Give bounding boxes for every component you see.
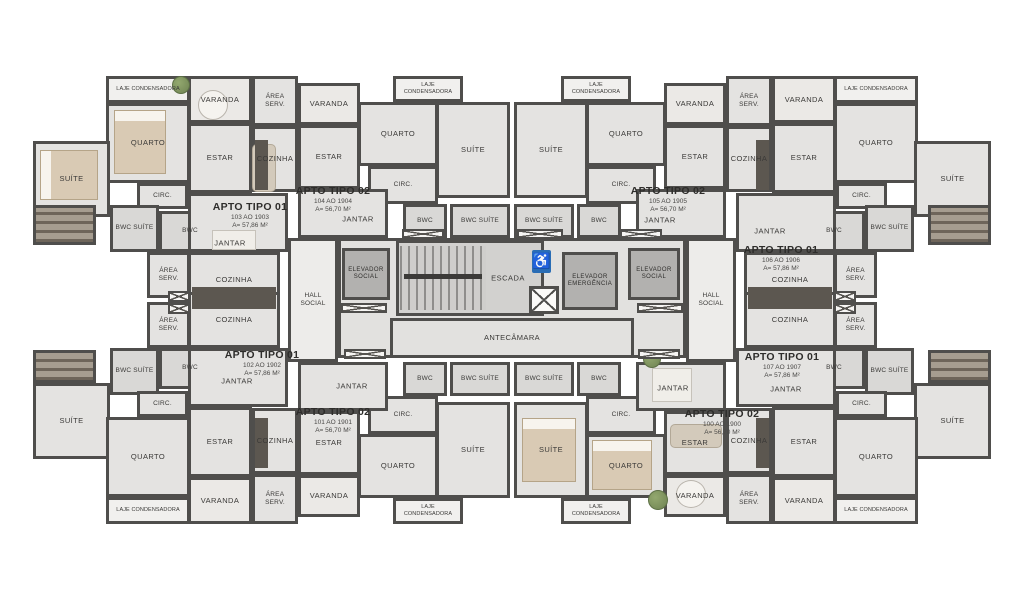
closet	[33, 205, 96, 245]
room-suite: SUÍTE	[514, 102, 588, 198]
room-jantar-label: JANTAR	[644, 216, 676, 225]
room-quarto: QUARTO	[358, 102, 438, 166]
room-suite: SUÍTE	[436, 102, 510, 198]
room-quarto: QUARTO	[586, 102, 666, 166]
apartment-title-102: APTO TIPO 01 102 AO 1902 A= 57,86 M²	[225, 349, 300, 377]
room-varanda: VARANDA	[772, 76, 836, 123]
room-laje-condensadora: LAJE CONDENSADORA	[834, 497, 918, 524]
room-circulacao: CIRC.	[137, 391, 188, 417]
floor-plan: LAJE CONDENSADORA VARANDA ÁREA SERV. QUA…	[0, 0, 1024, 597]
apartment-title-106: APTO TIPO 01 106 AO 1906 A= 57,86 M²	[744, 244, 819, 272]
room-bwc-suite: BWC SUÍTE	[865, 205, 914, 252]
room-laje-condensadora: LAJE CONDENSADORA	[106, 497, 190, 524]
room-laje-condensadora: LAJE CONDENSADORA	[393, 76, 463, 102]
room-laje-condensadora: LAJE CONDENSADORA	[561, 498, 631, 524]
stair-label: ESCADA	[491, 274, 525, 283]
plant	[648, 490, 668, 510]
room-estar: ESTAR	[188, 407, 252, 477]
room-hall-social: HALL SOCIAL	[686, 238, 736, 362]
apartment-title-104: APTO TIPO 02 104 AO 1904 A= 56,70 M²	[296, 185, 371, 213]
kitchen-counter	[756, 140, 769, 190]
room-bwc-suite: BWC SUÍTE	[450, 204, 510, 238]
room-varanda: VARANDA	[298, 475, 360, 517]
duct-shaft	[529, 286, 559, 314]
room-suite: SUÍTE	[914, 383, 991, 459]
room-varanda: VARANDA	[298, 83, 360, 125]
room-elevador-social: ELEVADOR SOCIAL	[342, 248, 390, 300]
room-jantar-label: JANTAR	[754, 227, 786, 236]
apartment-title-105: APTO TIPO 02 105 AO 1905 A= 56,70 M²	[631, 185, 706, 213]
kitchen-counter	[255, 140, 268, 190]
room-varanda: VARANDA	[188, 477, 252, 524]
room-area-servico: ÁREA SERV.	[726, 76, 772, 126]
stair-rail	[404, 274, 482, 279]
room-area-servico: ÁREA SERV.	[252, 474, 298, 524]
room-bwc-suite: BWC SUÍTE	[514, 362, 574, 396]
apartment-title-107: APTO TIPO 01 107 AO 1907 A= 57,86 M²	[745, 351, 820, 379]
room-jantar-label: JANTAR	[657, 384, 689, 393]
vent-grate	[344, 349, 386, 359]
room-jantar-label: JANTAR	[214, 239, 246, 248]
room-laje-condensadora: LAJE CONDENSADORA	[561, 76, 631, 102]
room-varanda: VARANDA	[664, 83, 726, 125]
room-elevador-emergencia: ELEVADOR EMERGÊNCIA	[562, 252, 618, 310]
room-jantar-label: JANTAR	[342, 215, 374, 224]
vent-grate	[517, 229, 563, 239]
room-circulacao: CIRC.	[836, 391, 887, 417]
apartment-title-101: APTO TIPO 02 101 AO 1901 A= 56,70 M²	[296, 406, 371, 434]
room-estar: ESTAR	[772, 407, 836, 477]
room-jantar-label: JANTAR	[221, 377, 253, 386]
room-bwc-suite: BWC SUÍTE	[865, 348, 914, 395]
room-bwc: BWC	[577, 362, 621, 396]
vent-grate	[620, 229, 662, 239]
vent-grate	[168, 291, 190, 302]
room-area-servico: ÁREA SERV.	[726, 474, 772, 524]
closet	[928, 350, 991, 383]
closet	[33, 350, 96, 383]
vent-grate	[341, 303, 387, 313]
room-estar: ESTAR	[664, 125, 726, 189]
room-hall-social: HALL SOCIAL	[288, 238, 338, 362]
vent-grate	[637, 303, 683, 313]
room-quarto: QUARTO	[106, 417, 190, 497]
vent-grate	[402, 229, 444, 239]
room-bwc: BWC	[403, 362, 447, 396]
room-suite: SUÍTE	[33, 383, 110, 459]
apartment-title-100: APTO TIPO 02 100 AO 1900 A= 56,70 M²	[685, 408, 760, 436]
vent-grate	[638, 349, 680, 359]
kitchen-counter	[748, 297, 832, 309]
room-jantar-label: JANTAR	[770, 385, 802, 394]
room-jantar-label: JANTAR	[336, 382, 368, 391]
room-estar: ESTAR	[298, 125, 360, 189]
room-bwc-suite: BWC SUÍTE	[450, 362, 510, 396]
wheelchair-accessible-icon: ♿	[532, 250, 551, 273]
room-laje-condensadora: LAJE CONDENSADORA	[834, 76, 918, 103]
room-bwc-suite: BWC SUÍTE	[110, 348, 159, 395]
room-bwc: BWC	[577, 204, 621, 238]
room-antecamara: ANTECÂMARA	[390, 318, 634, 358]
closet	[928, 205, 991, 245]
vent-grate	[168, 303, 190, 314]
room-area-servico: ÁREA SERV.	[252, 76, 298, 126]
room-varanda: VARANDA	[772, 477, 836, 524]
apartment-title-103: APTO TIPO 01 103 AO 1903 A= 57,86 M²	[213, 201, 288, 229]
room-quarto: QUARTO	[834, 417, 918, 497]
kitchen-counter	[192, 297, 276, 309]
room-laje-condensadora: LAJE CONDENSADORA	[393, 498, 463, 524]
room-estar: ESTAR	[188, 123, 252, 193]
room-quarto: QUARTO	[358, 434, 438, 498]
room-quarto: QUARTO	[834, 103, 918, 183]
room-estar: ESTAR	[772, 123, 836, 193]
room-elevador-social: ELEVADOR SOCIAL	[628, 248, 680, 300]
vent-grate	[834, 303, 856, 314]
vent-grate	[834, 291, 856, 302]
room-bwc-suite: BWC SUÍTE	[110, 205, 159, 252]
room-suite: SUÍTE	[436, 402, 510, 498]
